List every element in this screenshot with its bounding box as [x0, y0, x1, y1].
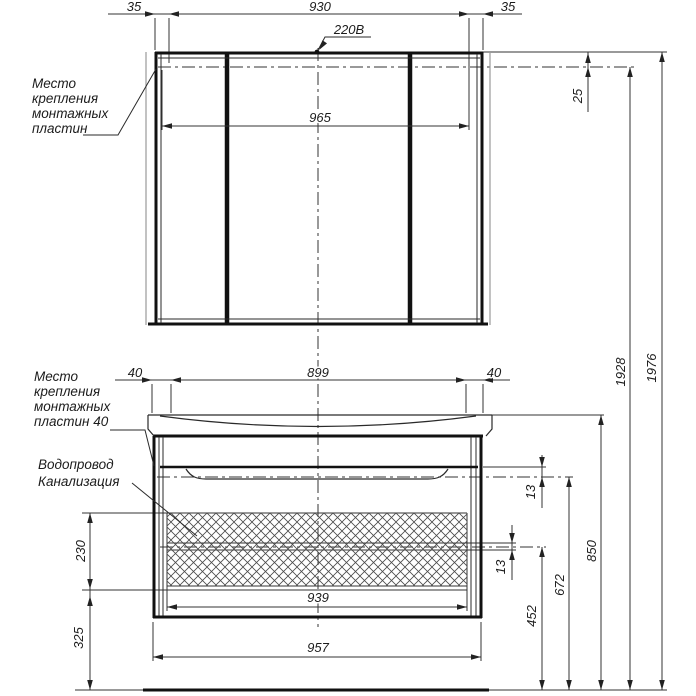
mirror-cabinet [146, 52, 490, 325]
mount-note-bottom-line2: крепления [34, 384, 100, 399]
dim-325: 325 [71, 626, 86, 648]
mount-note-bottom-leader [110, 430, 154, 466]
dim-957: 957 [307, 640, 329, 655]
dim-13-mid: 13 [493, 559, 508, 574]
power-label: 220В [333, 22, 365, 37]
dim-850: 850 [584, 539, 599, 561]
dim-35-right: 35 [501, 0, 516, 14]
mount-note-top-line1: Место [32, 76, 76, 91]
mount-note-bottom-line1: Место [34, 369, 78, 384]
dimension-lines [90, 14, 662, 690]
plumbing-cutout-hatch [167, 513, 467, 586]
plumbing-note-line2: Канализация [38, 474, 119, 489]
drawing-canvas: 35 930 35 220В 965 25 40 899 40 13 13 23… [0, 0, 696, 696]
mount-note-top-line2: крепления [32, 91, 98, 106]
power-point-dot [315, 50, 320, 55]
dim-13-top: 13 [523, 484, 538, 499]
technical-drawing: 35 930 35 220В 965 25 40 899 40 13 13 23… [0, 0, 696, 696]
dim-40-right: 40 [487, 365, 502, 380]
dim-230: 230 [73, 539, 88, 562]
mount-note-top-line3: монтажных [32, 106, 109, 121]
dim-1976: 1976 [644, 353, 659, 383]
dim-672: 672 [552, 573, 567, 595]
dim-35-left: 35 [127, 0, 142, 14]
dim-1928: 1928 [613, 357, 628, 387]
dim-939: 939 [307, 590, 329, 605]
dim-930: 930 [309, 0, 331, 14]
note-texts: Место крепления монтажных пластин Место … [32, 76, 119, 489]
dim-965: 965 [309, 110, 331, 125]
dim-25: 25 [570, 88, 585, 104]
arrowheads [87, 11, 665, 690]
mount-note-bottom-line4: пластин 40 [34, 414, 109, 429]
extension-lines [75, 18, 667, 690]
plumbing-note-line1: Водопровод [38, 457, 114, 472]
dim-899: 899 [307, 365, 329, 380]
plumbing-note-leader [132, 483, 197, 536]
dim-40-left: 40 [128, 365, 143, 380]
mount-note-bottom-line3: монтажных [34, 399, 111, 414]
mount-note-top-line4: пластин [32, 121, 88, 136]
dim-452: 452 [524, 604, 539, 626]
